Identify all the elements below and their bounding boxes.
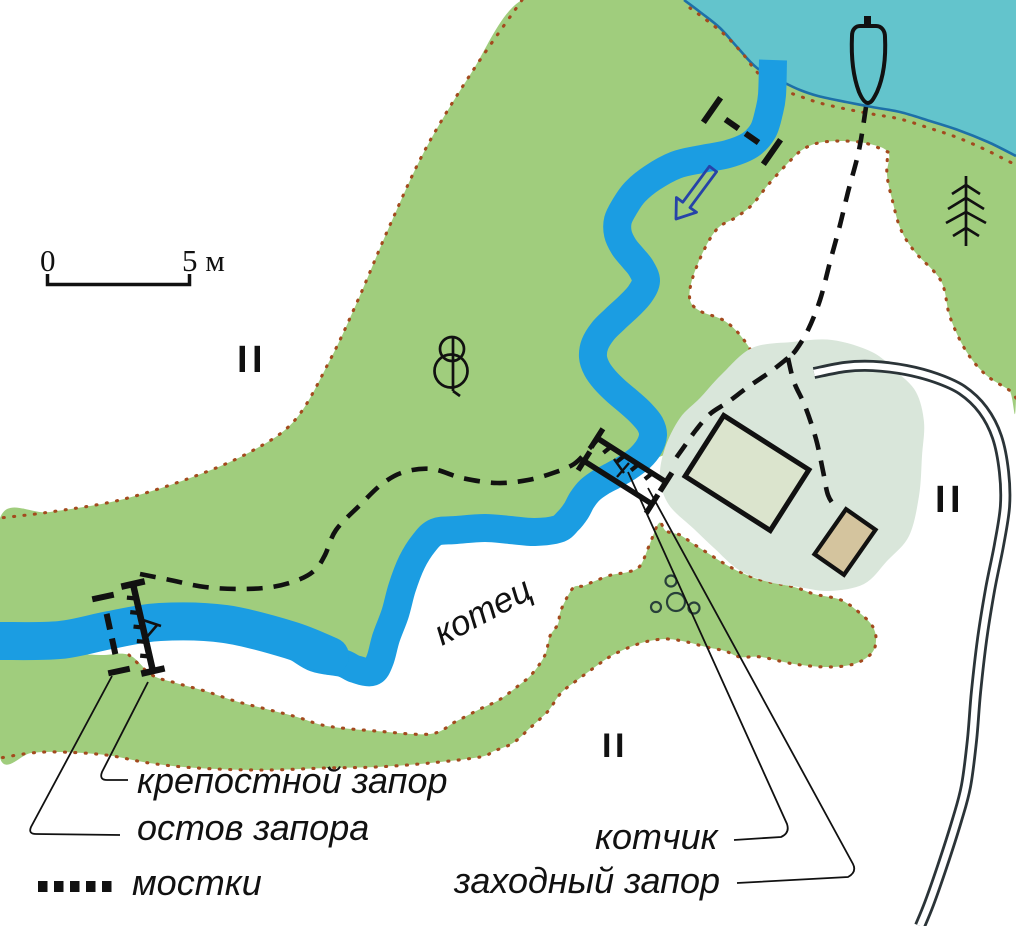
svg-text:остов запора: остов запора: [137, 807, 369, 848]
svg-text:II: II: [237, 339, 267, 381]
svg-text:II: II: [935, 479, 965, 521]
svg-text:котчик: котчик: [595, 816, 720, 857]
svg-text:мостки: мостки: [132, 862, 262, 903]
svg-text:заходный запор: заходный запор: [453, 860, 720, 901]
svg-text:II: II: [602, 727, 628, 765]
svg-text:0: 0: [40, 243, 56, 278]
svg-text:крепостной запор: крепостной запор: [137, 760, 448, 801]
svg-text:5 м: 5 м: [182, 243, 225, 278]
